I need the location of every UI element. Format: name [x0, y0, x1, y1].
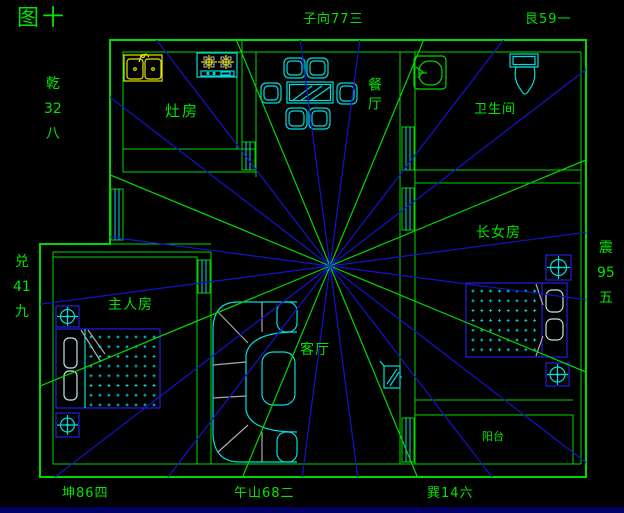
washbasin-icon: [414, 56, 446, 89]
floor-plan-drawing: [0, 0, 624, 513]
chair-icon: [286, 108, 307, 129]
mattress-dot-pattern: [472, 290, 537, 352]
coffee-table-icon: [262, 352, 295, 405]
bed-icon: [56, 329, 160, 408]
bed-icon: [466, 283, 567, 357]
compass-number: 95: [597, 261, 615, 286]
dining-chairs: [261, 58, 357, 129]
compass-label-bottom-center: 午山68二: [234, 487, 295, 500]
compass-label-top-center: 子向77三: [303, 13, 364, 26]
compass-label-right: 震 95 五: [597, 236, 615, 311]
ceiling-lamp-target-icon: [56, 306, 79, 327]
compass-ray: [257, 266, 330, 513]
compass-char: 五: [599, 286, 613, 311]
window-icon: [111, 189, 123, 240]
compass-ray: [0, 193, 330, 266]
room-label-kitchen: 灶房: [165, 104, 199, 119]
compass-label-top-right: 艮59一: [525, 13, 572, 26]
stove-icon: [197, 53, 237, 77]
toilet-icon: [510, 54, 538, 94]
chair-icon: [284, 58, 305, 78]
tv-icon: [380, 361, 402, 388]
compass-ray: [330, 266, 624, 513]
bottom-bar: [0, 507, 624, 513]
compass-number: 32: [44, 97, 62, 122]
dining-table-icon: [287, 82, 333, 103]
compass-char: 乾: [46, 72, 60, 97]
kitchen-wall: [123, 52, 237, 149]
compass-ray: [330, 266, 403, 513]
cad-canvas: 图十 子向77三 艮59一 乾 32 八 兑 41 九 震 95 五 坤86四 …: [0, 0, 624, 513]
room-label-balcony: 阳台: [482, 431, 504, 442]
compass-ray: [330, 266, 624, 339]
room-label-master: 主人房: [108, 298, 153, 312]
ceiling-lamp-target-icon: [546, 255, 571, 280]
compass-char: 八: [46, 122, 60, 147]
compass-label-bottom-right: 巽14六: [427, 487, 474, 500]
compass-ray: [330, 266, 544, 513]
ceiling-lamp-target-icon: [56, 413, 79, 437]
compass-label-bottom-left: 坤86四: [62, 487, 109, 500]
room-label-living: 客厅: [300, 343, 330, 357]
compass-char: 九: [15, 300, 29, 325]
chair-icon: [307, 58, 328, 78]
pillow-icon: [546, 290, 563, 340]
chair-icon: [261, 83, 281, 103]
window-icon: [198, 260, 210, 293]
ceiling-lamp-target-icon: [546, 363, 569, 386]
compass-label-left-lower: 兑 41 九: [13, 250, 31, 325]
compass-char: 震: [599, 236, 613, 261]
compass-ray: [330, 266, 624, 513]
kitchen-sink-icon: [124, 54, 162, 81]
figure-title: 图十: [17, 8, 67, 30]
compass-label-left-upper: 乾 32 八: [44, 72, 62, 147]
pillow-icon: [64, 338, 77, 400]
room-label-dining: 餐厅: [367, 77, 381, 115]
compass-char: 兑: [15, 250, 29, 275]
master-bedroom-wall: [53, 257, 197, 464]
compass-number: 41: [13, 275, 31, 300]
mattress-dots: [472, 290, 537, 352]
room-label-eldest-daughter: 长女房: [476, 226, 521, 240]
room-label-bathroom: 卫生间: [474, 103, 516, 116]
compass-ray: [0, 266, 330, 480]
